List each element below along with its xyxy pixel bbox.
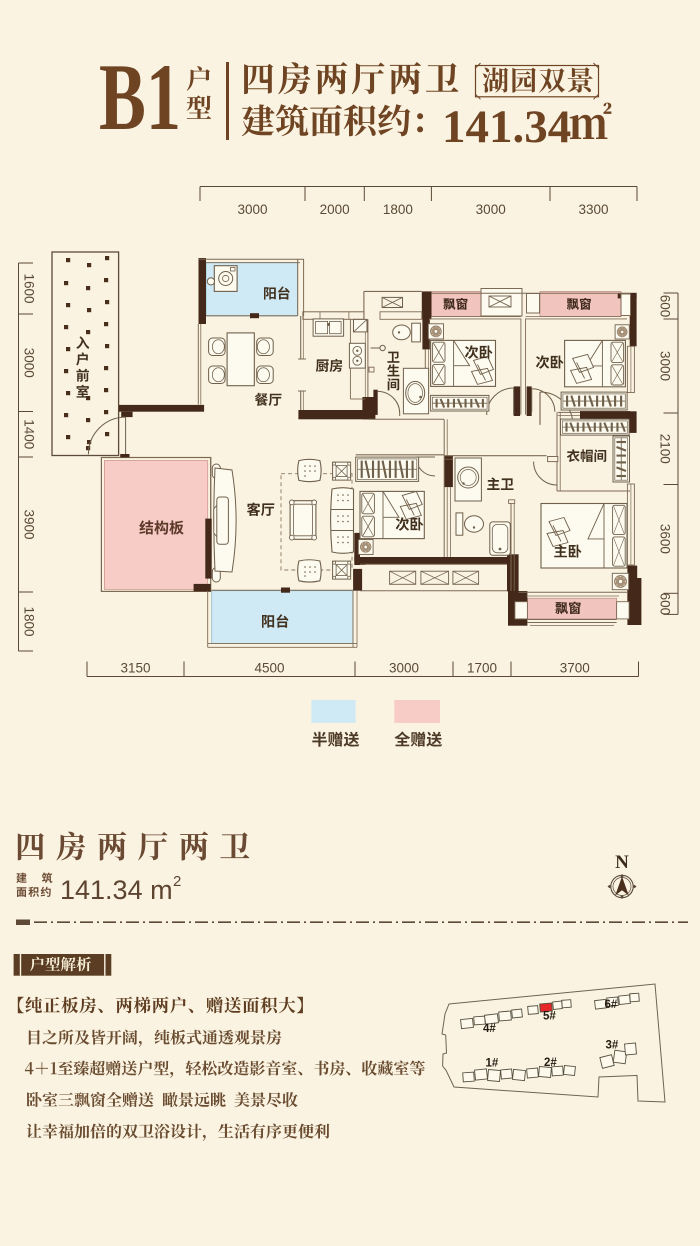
- svg-text:1600: 1600: [22, 273, 37, 303]
- svg-text:2: 2: [173, 873, 181, 890]
- svg-text:3600: 3600: [658, 524, 673, 554]
- svg-text:2100: 2100: [658, 434, 673, 464]
- svg-text:1#: 1#: [486, 1058, 499, 1070]
- svg-text:3900: 3900: [22, 509, 37, 539]
- svg-text:141.34 m: 141.34 m: [60, 875, 173, 905]
- svg-text:3#: 3#: [606, 1040, 619, 1052]
- svg-text:3000: 3000: [658, 351, 673, 381]
- svg-text:3000: 3000: [237, 202, 267, 217]
- svg-text:600: 600: [658, 593, 673, 616]
- svg-text:1700: 1700: [467, 661, 497, 676]
- svg-text:1400: 1400: [22, 419, 37, 449]
- svg-text:3300: 3300: [578, 202, 608, 217]
- svg-text:1800: 1800: [383, 202, 413, 217]
- svg-text:2#: 2#: [544, 1057, 557, 1069]
- svg-text:B1: B1: [99, 44, 181, 150]
- svg-text:3000: 3000: [389, 661, 419, 676]
- svg-text:3700: 3700: [560, 661, 590, 676]
- svg-text:5#: 5#: [543, 1011, 556, 1023]
- svg-text:600: 600: [658, 295, 673, 318]
- svg-text:N: N: [615, 852, 629, 873]
- svg-text:141.34: 141.34: [442, 101, 571, 153]
- svg-text:3150: 3150: [120, 661, 150, 676]
- svg-text:3000: 3000: [476, 202, 506, 217]
- svg-text:4#: 4#: [483, 1023, 496, 1035]
- svg-text:1800: 1800: [22, 606, 37, 636]
- svg-text:4500: 4500: [254, 661, 284, 676]
- svg-text:6#: 6#: [605, 999, 618, 1011]
- svg-text:3000: 3000: [22, 348, 37, 378]
- svg-text:2000: 2000: [320, 202, 350, 217]
